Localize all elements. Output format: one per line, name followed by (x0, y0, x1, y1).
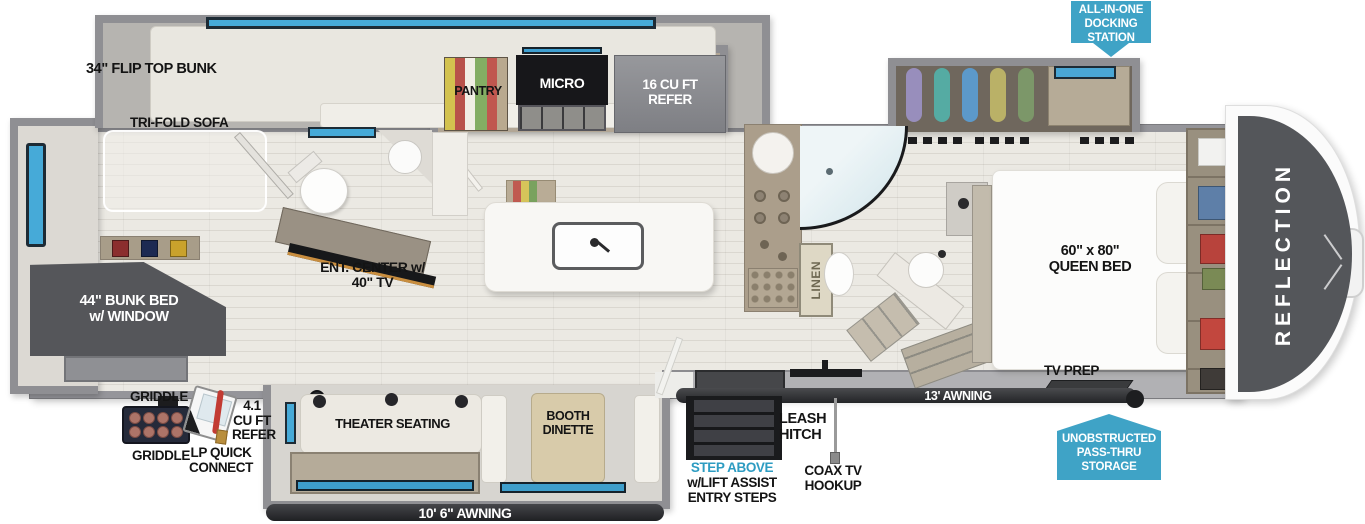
burner (778, 190, 790, 202)
ottoman-window (296, 480, 474, 491)
bath-faucet (938, 250, 946, 258)
docking-station-banner: ALL-IN-ONE DOCKING STATION (1071, 1, 1151, 43)
rv-floorplan: LINEN REFLECTION (0, 0, 1365, 524)
shower-drain (826, 168, 833, 175)
burner (778, 212, 790, 224)
queen-bed-label: 60" x 80" QUEEN BED (1028, 244, 1152, 275)
bunk-drawers (64, 356, 188, 382)
burner (754, 190, 766, 202)
bed-lift-hardware (908, 137, 962, 144)
pass-thru-roof (1057, 414, 1161, 431)
banner-line: DOCKING (1085, 18, 1138, 30)
theater-seating-label: THEATER SEATING (330, 417, 455, 431)
lift-assist-label: w/LIFT ASSIST ENTRY STEPS (686, 476, 778, 505)
range-stove (518, 105, 606, 131)
bath-toilet (824, 252, 854, 296)
booth-dinette-label: BOOTH DINETTE (536, 410, 600, 437)
flip-top-bunk-label: 34" FLIP TOP BUNK (86, 62, 208, 78)
dinette-bench-right (634, 395, 660, 483)
counter-round-sink (752, 132, 794, 174)
leash-hitch-post (822, 360, 828, 374)
counter-drawer (748, 268, 798, 308)
outside-refer-label: 4.1 CU FT REFER (232, 399, 272, 443)
entry-step-well (695, 370, 785, 390)
pantry-label: PANTRY (448, 85, 508, 99)
coax-label: COAX TV HOOKUP (791, 464, 875, 493)
cupholder (385, 393, 398, 406)
awning-front-endcap (1126, 390, 1144, 408)
brand-wordmark: REFLECTION (1266, 128, 1302, 380)
bath-sink (908, 252, 944, 288)
kitchen-slide-window (522, 47, 602, 54)
brand-text: REFLECTION (1272, 162, 1296, 346)
island-sink (552, 222, 644, 270)
micro-label: MICRO (516, 76, 608, 91)
entry-steps (686, 396, 782, 460)
banner-line: STORAGE (1081, 461, 1136, 473)
pass-thru-banner: UNOBSTRUCTED PASS-THRU STORAGE (1057, 431, 1161, 480)
knob (760, 240, 769, 249)
step-above-label: STEP ABOVE (690, 461, 774, 476)
ent-center-label: ENT. CENTER w/ 40" TV (305, 260, 440, 290)
coax-cable (834, 398, 837, 458)
griddle (122, 406, 190, 444)
leash-hitch-label: LEASH HITCH (779, 412, 826, 443)
lp-quick-connect-label: LP QUICK CONNECT (186, 446, 256, 475)
dinette-window (500, 482, 626, 493)
awning-rear-label: 10' 6" AWNING (266, 506, 664, 521)
docking-station-pointer (1093, 43, 1129, 57)
dresser-top-item (1054, 66, 1116, 79)
bed-lift-hardware (975, 137, 1029, 144)
lamp (958, 198, 969, 209)
banner-line: STATION (1087, 32, 1134, 44)
bunk-bed-label: 44" BUNK BED w/ WINDOW (54, 294, 204, 325)
griddle-label-bottom: GRIDDLE (132, 449, 190, 464)
tv-prep-label: TV PREP (1044, 364, 1099, 379)
burner (754, 212, 766, 224)
awning-front-label: 13' AWNING (888, 390, 1028, 404)
bed-foot-bench (972, 185, 992, 363)
banner-line: PASS-THRU (1077, 447, 1141, 459)
game-shelf (100, 236, 200, 260)
lp-fitting (215, 429, 228, 444)
knob (778, 252, 787, 261)
half-bath-sink (388, 140, 422, 174)
dinette-bench-left (481, 395, 507, 483)
living-slide-window-left (285, 402, 296, 444)
linen-label: LINEN (809, 261, 823, 300)
banner-line: UNOBSTRUCTED (1062, 433, 1156, 445)
bed-lift-hardware (1080, 137, 1134, 144)
tri-fold-sofa-label: TRI-FOLD SOFA (130, 116, 222, 131)
bunk-room-window (206, 17, 656, 29)
half-bath-window (308, 127, 376, 138)
refer16-label: 16 CU FT REFER (614, 78, 726, 107)
cupholder (313, 395, 326, 408)
dinette-table (531, 393, 605, 483)
half-bath-toilet (300, 168, 348, 214)
kitchen-counter-left (432, 132, 468, 216)
banner-line: ALL-IN-ONE (1079, 4, 1143, 16)
cupholder (455, 395, 468, 408)
griddle-label-top: GRIDDLE (130, 390, 188, 405)
rear-window (26, 143, 46, 247)
